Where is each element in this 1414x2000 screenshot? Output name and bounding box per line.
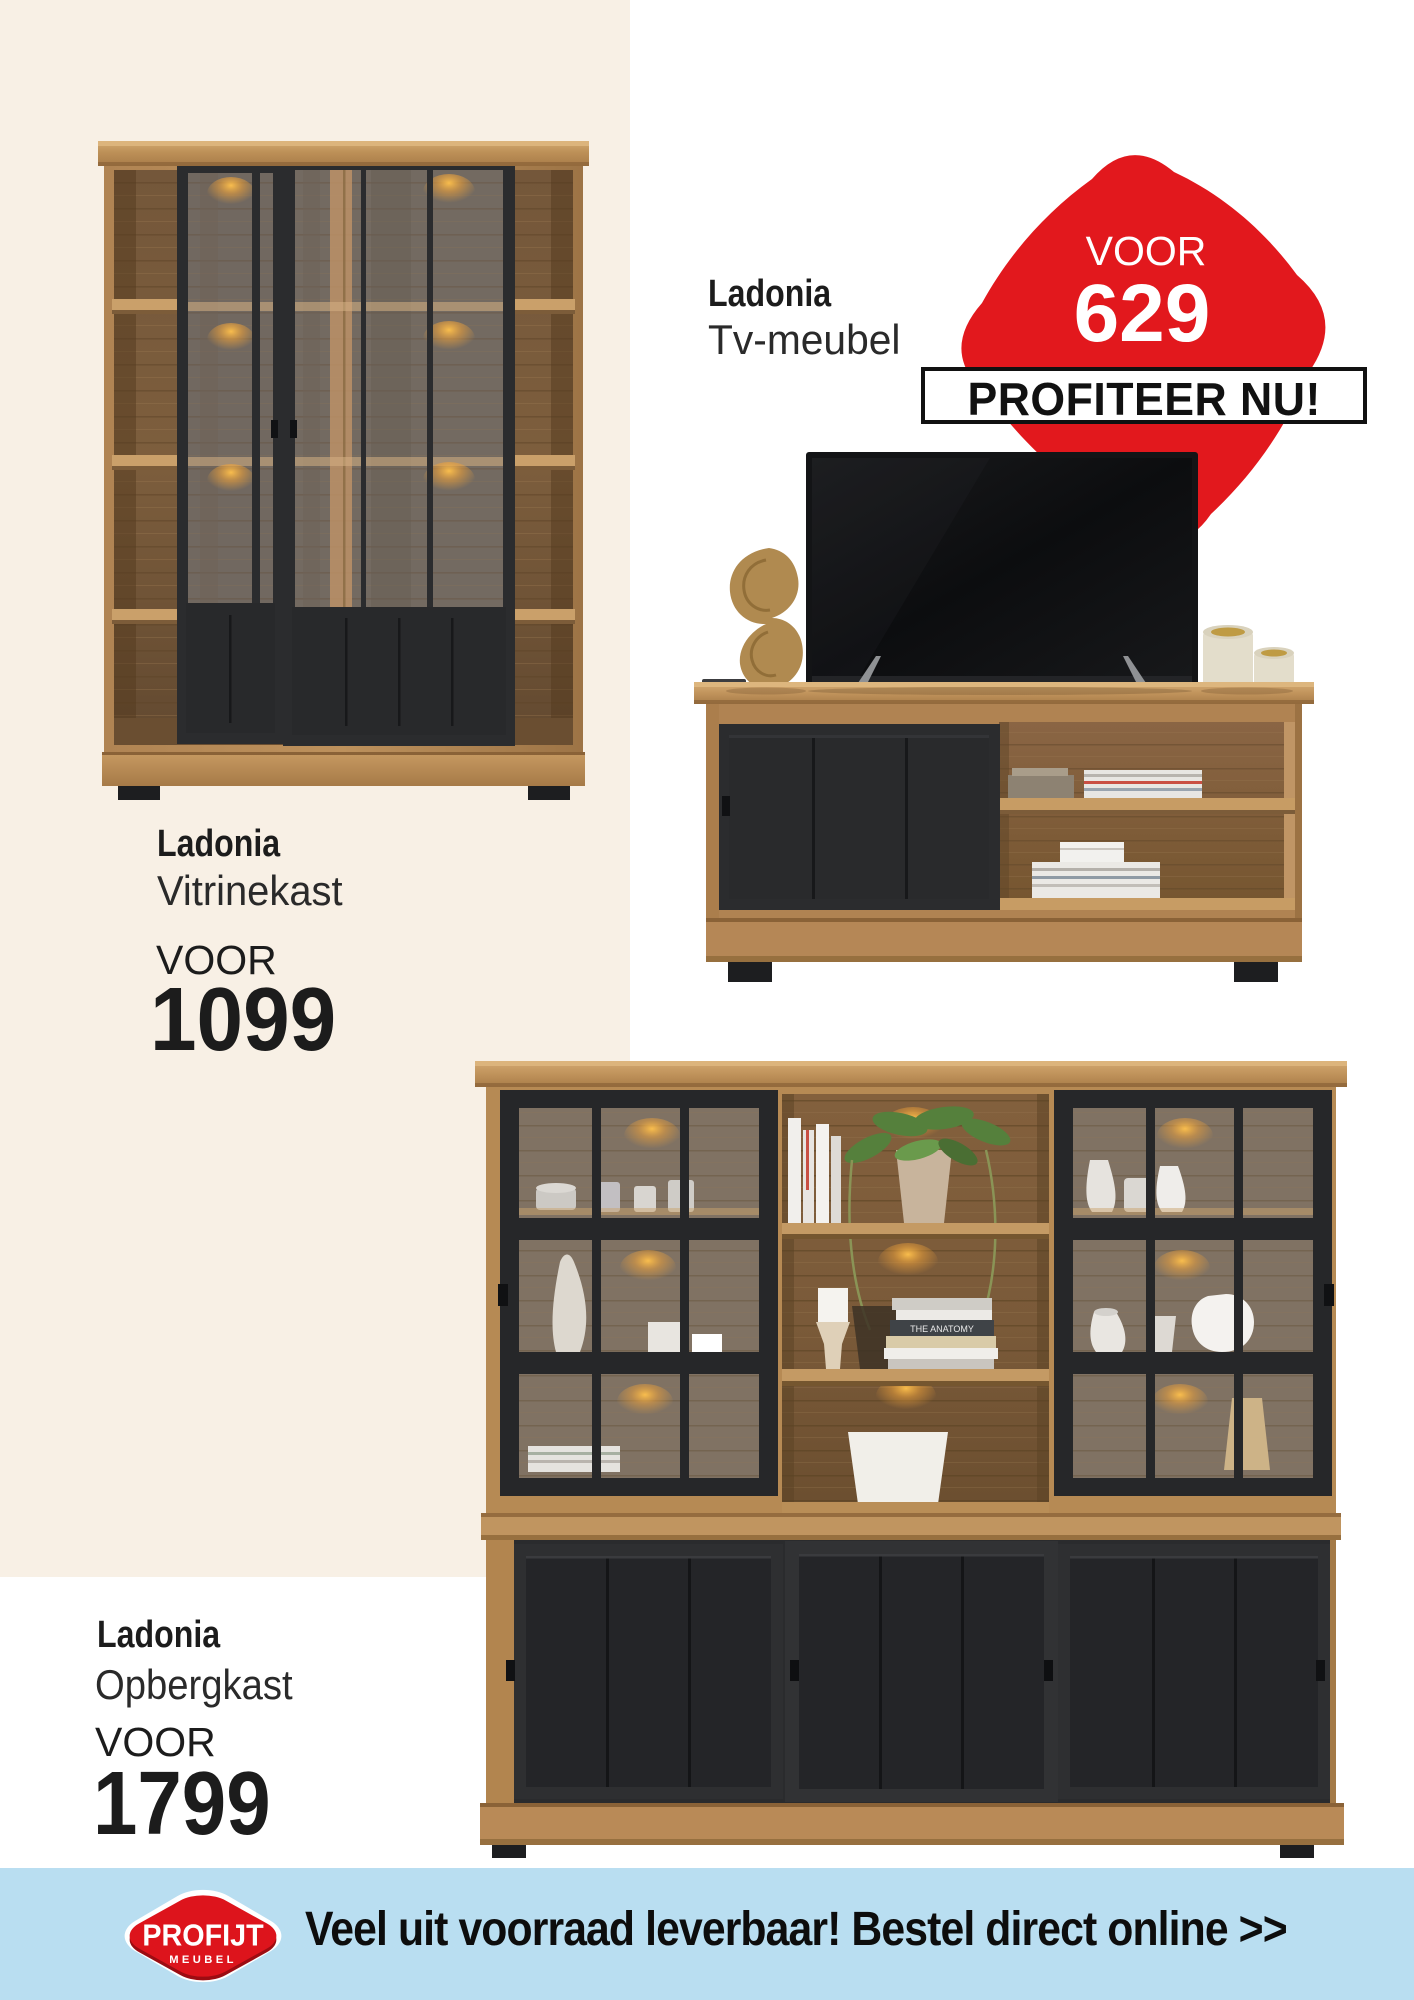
svg-text:THE ANATOMY: THE ANATOMY: [910, 1324, 974, 1334]
svg-text:PROFIJT: PROFIJT: [142, 1919, 263, 1953]
svg-text:629: 629: [1074, 268, 1211, 359]
svg-text:MEUBEL: MEUBEL: [169, 1954, 237, 1966]
